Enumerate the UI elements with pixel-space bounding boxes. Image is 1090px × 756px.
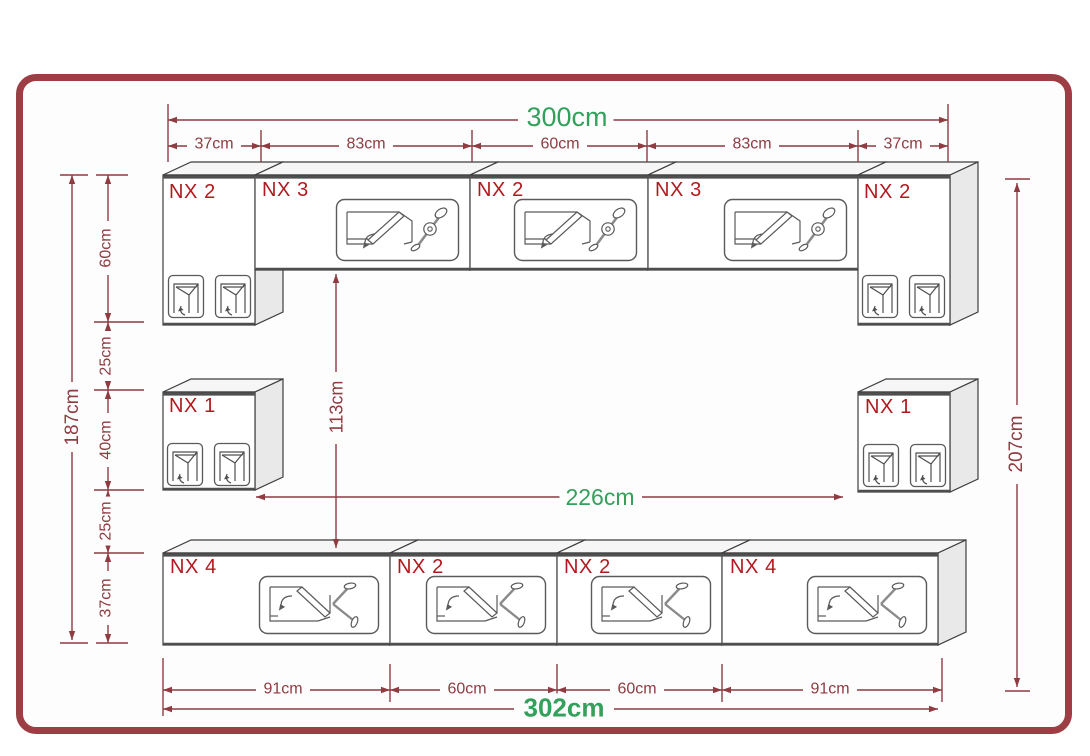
cabinet-label-top-1: NX 2: [169, 182, 216, 202]
dim-inner-width: 226cm: [559, 484, 640, 510]
hinged-door-icon: [864, 445, 899, 487]
dim-top-seg-5: 37cm: [877, 136, 928, 155]
dim-top-total: 300cm: [520, 102, 613, 132]
dim-right-total: 207cm: [1006, 410, 1028, 477]
dim-top-seg-4: 83cm: [726, 136, 777, 155]
cabinet-label-bottom-1: NX 4: [170, 557, 217, 577]
cabinet-label-bottom-3: NX 2: [564, 557, 611, 577]
dim-bottom-seg-2: 60cm: [441, 681, 492, 700]
dim-left-seg-2: 25cm: [98, 331, 117, 380]
cabinet-label-top-5: NX 2: [864, 182, 911, 202]
hinged-door-icon: [169, 276, 204, 318]
dim-left-seg-3: 40cm: [98, 415, 117, 464]
dim-top-seg-1: 37cm: [188, 136, 239, 155]
flap-door-mechanism-icon: [725, 200, 847, 261]
hinged-door-icon: [216, 276, 251, 318]
dim-top-seg-3: 60cm: [534, 136, 585, 155]
cabinet-label-mid-left: NX 1: [169, 396, 216, 416]
dim-bottom-seg-4: 91cm: [804, 681, 855, 700]
drop-door-mechanism-icon: [592, 577, 711, 634]
dim-line-inner-width: [256, 494, 843, 500]
dim-inner-height: 113cm: [327, 376, 348, 439]
dim-left-seg-4: 25cm: [98, 496, 117, 545]
cabinet-label-top-3: NX 2: [477, 180, 524, 200]
hinged-door-icon: [911, 445, 946, 487]
cabinet-label-mid-right: NX 1: [865, 397, 912, 417]
dim-left-seg-1: 60cm: [98, 223, 117, 272]
drop-door-mechanism-icon: [260, 577, 379, 634]
dim-bottom-seg-1: 91cm: [257, 681, 308, 700]
furniture-dimension-diagram: NX 2 NX 3 NX 2 NX 3 NX 2 NX 1 NX 1 NX 4 …: [0, 0, 1090, 756]
hinged-door-icon: [168, 444, 203, 486]
hinged-door-icon: [215, 444, 250, 486]
dim-top-seg-2: 83cm: [340, 136, 391, 155]
drop-door-mechanism-icon: [808, 577, 927, 634]
hinged-door-icon: [910, 276, 945, 318]
cabinet-label-bottom-4: NX 4: [730, 557, 777, 577]
dim-bottom-total: 302cm: [518, 693, 611, 722]
dim-left-total: 187cm: [62, 383, 84, 450]
cabinet-label-top-4: NX 3: [655, 180, 702, 200]
drop-door-mechanism-icon: [427, 577, 546, 634]
flap-door-mechanism-icon: [515, 200, 637, 261]
hinged-door-icon: [863, 276, 898, 318]
cabinet-label-bottom-2: NX 2: [397, 557, 444, 577]
flap-door-mechanism-icon: [337, 200, 459, 261]
dim-left-seg-5: 37cm: [98, 573, 117, 622]
dim-bottom-seg-3: 60cm: [611, 681, 662, 700]
cabinet-label-top-2: NX 3: [262, 180, 309, 200]
